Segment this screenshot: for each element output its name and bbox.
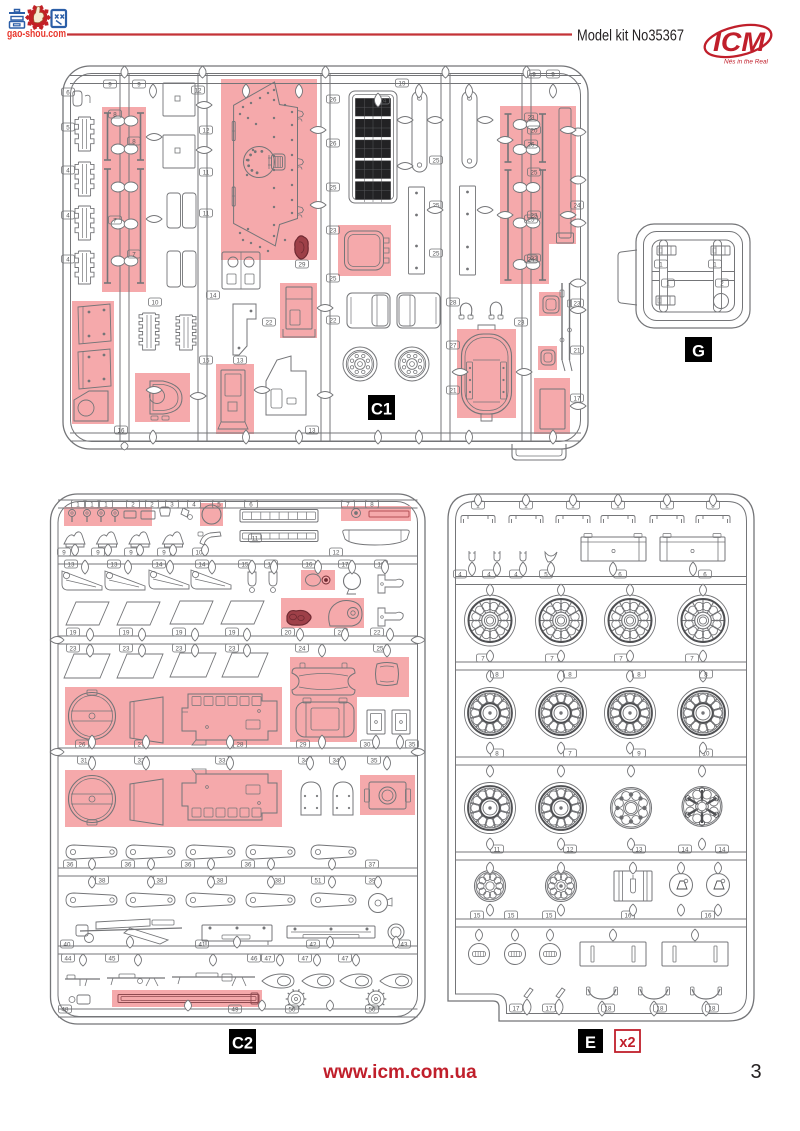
svg-text:42: 42 <box>310 941 317 948</box>
svg-text:23: 23 <box>531 212 538 219</box>
svg-text:25: 25 <box>330 275 337 282</box>
svg-text:9: 9 <box>637 750 641 757</box>
svg-text:13: 13 <box>309 427 316 434</box>
svg-text:10: 10 <box>152 299 159 306</box>
svg-text:14: 14 <box>719 846 726 853</box>
svg-text:8: 8 <box>113 111 117 118</box>
svg-text:24: 24 <box>574 202 581 209</box>
svg-text:9: 9 <box>532 71 536 78</box>
svg-text:7: 7 <box>346 501 350 508</box>
svg-text:8: 8 <box>637 671 641 678</box>
svg-text:8: 8 <box>568 671 572 678</box>
svg-text:38: 38 <box>217 877 224 884</box>
svg-text:22: 22 <box>374 629 381 636</box>
svg-text:17: 17 <box>342 561 349 568</box>
svg-text:29: 29 <box>299 261 306 268</box>
svg-text:25: 25 <box>531 169 538 176</box>
svg-text:12: 12 <box>195 87 202 94</box>
svg-text:31: 31 <box>81 757 88 764</box>
svg-text:27: 27 <box>450 342 457 349</box>
svg-text:33: 33 <box>219 757 226 764</box>
svg-text:7: 7 <box>568 750 572 757</box>
svg-text:1: 1 <box>104 501 108 508</box>
svg-text:15: 15 <box>474 912 481 919</box>
svg-text:6: 6 <box>66 89 70 96</box>
svg-text:6: 6 <box>618 571 622 578</box>
svg-text:7: 7 <box>481 655 485 662</box>
svg-text:1: 1 <box>713 261 717 268</box>
svg-text:6: 6 <box>703 571 707 578</box>
svg-text:9: 9 <box>162 549 166 556</box>
svg-text:26: 26 <box>330 140 337 147</box>
svg-text:38: 38 <box>157 877 164 884</box>
svg-text:8: 8 <box>132 138 136 145</box>
svg-text:18: 18 <box>709 1005 716 1012</box>
svg-text:23: 23 <box>528 114 535 121</box>
svg-text:7: 7 <box>550 655 554 662</box>
svg-text:5: 5 <box>544 571 548 578</box>
svg-text:9: 9 <box>551 71 555 78</box>
svg-text:11: 11 <box>494 846 501 853</box>
svg-text:12: 12 <box>567 846 574 853</box>
svg-text:23: 23 <box>330 227 337 234</box>
svg-text:26: 26 <box>528 141 535 148</box>
svg-text:51: 51 <box>315 877 322 884</box>
svg-text:46: 46 <box>251 955 258 962</box>
svg-text:23: 23 <box>229 645 236 652</box>
svg-text:18: 18 <box>605 1005 612 1012</box>
svg-text:3: 3 <box>170 501 174 508</box>
svg-text:26: 26 <box>330 96 337 103</box>
svg-text:23: 23 <box>518 319 525 326</box>
svg-text:28: 28 <box>450 299 457 306</box>
svg-text:17: 17 <box>574 395 581 402</box>
svg-text:9: 9 <box>137 81 141 88</box>
svg-text:36: 36 <box>67 861 74 868</box>
svg-text:11: 11 <box>203 169 210 176</box>
svg-text:24: 24 <box>299 645 306 652</box>
svg-text:4: 4 <box>192 501 196 508</box>
svg-text:x2: x2 <box>619 1035 635 1051</box>
svg-text:1: 1 <box>76 501 80 508</box>
svg-text:25: 25 <box>433 157 440 164</box>
svg-text:35: 35 <box>371 757 378 764</box>
svg-text:13: 13 <box>636 846 643 853</box>
svg-text:C2: C2 <box>232 1035 253 1053</box>
svg-text:4: 4 <box>66 256 70 263</box>
svg-text:5: 5 <box>217 501 221 508</box>
svg-text:16: 16 <box>306 561 313 568</box>
svg-text:19: 19 <box>176 629 183 636</box>
svg-text:12: 12 <box>203 127 210 134</box>
svg-text:4: 4 <box>487 571 491 578</box>
svg-text:37: 37 <box>369 861 376 868</box>
svg-text:13: 13 <box>237 357 244 364</box>
svg-text:15: 15 <box>546 912 553 919</box>
svg-text:47: 47 <box>342 955 349 962</box>
svg-text:13: 13 <box>68 561 75 568</box>
svg-text:23: 23 <box>176 645 183 652</box>
svg-text:50: 50 <box>369 1006 376 1013</box>
svg-text:Model kit No35367: Model kit No35367 <box>577 28 684 45</box>
svg-text:8: 8 <box>370 501 374 508</box>
svg-text:50: 50 <box>289 1006 296 1013</box>
svg-text:15: 15 <box>203 357 210 364</box>
svg-text:35: 35 <box>409 741 416 748</box>
svg-text:38: 38 <box>275 877 282 884</box>
svg-text:14: 14 <box>156 561 163 568</box>
svg-text:5: 5 <box>66 124 70 131</box>
svg-text:19: 19 <box>70 629 77 636</box>
svg-text:4: 4 <box>66 212 70 219</box>
svg-text:19: 19 <box>399 80 406 87</box>
svg-text:www.icm.com.ua: www.icm.com.ua <box>322 1062 477 1083</box>
svg-text:G: G <box>692 343 705 361</box>
svg-text:19: 19 <box>123 629 130 636</box>
svg-text:13: 13 <box>111 561 118 568</box>
svg-text:4: 4 <box>458 571 462 578</box>
svg-text:3: 3 <box>750 1061 761 1083</box>
svg-text:ICM: ICM <box>713 27 766 57</box>
svg-text:4: 4 <box>66 167 70 174</box>
svg-text:Nés in the Real: Nés in the Real <box>724 59 769 66</box>
svg-text:38: 38 <box>99 877 106 884</box>
svg-text:15: 15 <box>242 561 249 568</box>
svg-text:12: 12 <box>333 549 340 556</box>
svg-text:23: 23 <box>531 255 538 262</box>
svg-text:1: 1 <box>666 280 670 287</box>
svg-text:1: 1 <box>90 501 94 508</box>
svg-text:18: 18 <box>657 1005 664 1012</box>
svg-text:20: 20 <box>285 629 292 636</box>
svg-text:9: 9 <box>129 549 133 556</box>
svg-text:8: 8 <box>495 671 499 678</box>
svg-text:28: 28 <box>237 741 244 748</box>
svg-text:7: 7 <box>132 251 136 258</box>
svg-text:49: 49 <box>232 1006 239 1013</box>
svg-text:36: 36 <box>125 861 132 868</box>
svg-text:20: 20 <box>531 127 538 134</box>
svg-text:C1: C1 <box>371 401 392 419</box>
svg-text:25: 25 <box>433 250 440 257</box>
svg-text:29: 29 <box>300 741 307 748</box>
svg-text:6: 6 <box>249 501 253 508</box>
svg-text:44: 44 <box>65 955 72 962</box>
svg-text:45: 45 <box>109 955 116 962</box>
svg-text:21: 21 <box>450 387 457 394</box>
svg-text:4: 4 <box>514 571 518 578</box>
svg-text:8: 8 <box>704 671 708 678</box>
svg-text:2: 2 <box>131 501 135 508</box>
svg-text:gao-shou.com: gao-shou.com <box>7 28 66 40</box>
svg-text:25: 25 <box>377 645 384 652</box>
svg-text:36: 36 <box>185 861 192 868</box>
svg-text:2: 2 <box>720 280 724 287</box>
svg-text:23: 23 <box>70 645 77 652</box>
svg-text:23: 23 <box>123 645 130 652</box>
svg-text:14: 14 <box>199 561 206 568</box>
svg-text:7: 7 <box>113 217 117 224</box>
svg-text:9: 9 <box>108 81 112 88</box>
svg-text:22: 22 <box>266 319 273 326</box>
svg-text:40: 40 <box>64 941 71 948</box>
svg-text:15: 15 <box>508 912 515 919</box>
svg-text:14: 14 <box>210 292 217 299</box>
svg-text:9: 9 <box>62 549 66 556</box>
svg-text:14: 14 <box>682 846 689 853</box>
svg-text:19: 19 <box>229 629 236 636</box>
svg-text:22: 22 <box>330 317 337 324</box>
svg-text:9: 9 <box>96 549 100 556</box>
svg-text:17: 17 <box>546 1005 553 1012</box>
svg-text:7: 7 <box>619 655 623 662</box>
svg-text:16: 16 <box>705 912 712 919</box>
svg-text:48: 48 <box>62 1006 69 1013</box>
svg-text:47: 47 <box>265 955 272 962</box>
svg-text:11: 11 <box>252 535 259 542</box>
svg-text:43: 43 <box>401 941 408 948</box>
svg-text:17: 17 <box>513 1005 520 1012</box>
svg-text:21: 21 <box>574 347 581 354</box>
svg-text:36: 36 <box>245 861 252 868</box>
svg-text:E: E <box>585 1034 596 1052</box>
svg-text:41: 41 <box>199 941 206 948</box>
svg-text:11: 11 <box>203 210 210 217</box>
svg-text:26: 26 <box>79 741 86 748</box>
svg-text:1: 1 <box>659 261 663 268</box>
svg-text:30: 30 <box>364 741 371 748</box>
svg-text:47: 47 <box>302 955 309 962</box>
svg-text:2: 2 <box>150 501 154 508</box>
svg-text:25: 25 <box>330 184 337 191</box>
svg-text:8: 8 <box>495 750 499 757</box>
svg-text:16: 16 <box>118 427 125 434</box>
svg-text:7: 7 <box>690 655 694 662</box>
